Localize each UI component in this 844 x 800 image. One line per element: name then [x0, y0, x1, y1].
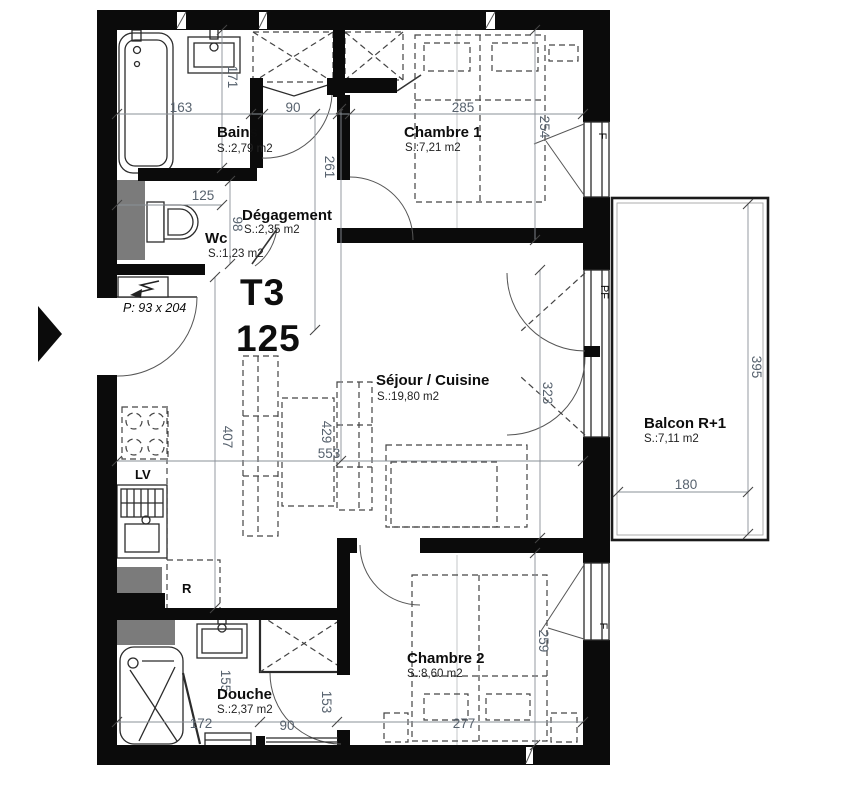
shaft-kitchen-wall: [117, 593, 165, 609]
area-douche: S.:2,37 m2: [217, 704, 273, 716]
floorplan-svg: 163 90 285 171 261 254 125 98 407 429 55…: [0, 0, 844, 800]
wall-douche-chambre2: [337, 538, 350, 675]
dim-chambre1-depth: 254: [537, 116, 552, 139]
sofa: [243, 356, 278, 536]
dim-kitchen-run: 407: [220, 426, 235, 449]
shower-screen: [183, 673, 200, 744]
dim-balcon-width: 180: [675, 477, 698, 492]
dim-french-window-span: 323: [540, 382, 555, 405]
shaft-kitchen-2: [117, 620, 175, 645]
label-sejour: Séjour / Cuisine: [376, 372, 489, 389]
floorplan-canvas: 163 90 285 171 261 254 125 98 407 429 55…: [0, 0, 844, 800]
closet-bifold-door: [255, 84, 331, 96]
window-label-chambre2: F: [597, 623, 609, 630]
nightstand: [549, 45, 578, 61]
label-balcon: Balcon R+1: [644, 415, 726, 432]
entry-door-label: P: 93 x 204: [123, 301, 186, 315]
label-douche: Douche: [217, 686, 272, 703]
chairs: [337, 382, 372, 510]
pillow: [486, 694, 530, 720]
area-bains: S.:2,79 m2: [217, 143, 273, 155]
wall-degagement-chambre1: [337, 95, 350, 180]
wall-wc-entry: [97, 264, 205, 275]
unit-number: 125: [236, 318, 301, 359]
dim-wc-width: 125: [192, 188, 215, 203]
wall-bains-wc: [138, 168, 257, 181]
dishwasher-label: LV: [135, 467, 151, 482]
dim-sejour-width: 553: [318, 446, 341, 461]
dim-sejour-depth: 429: [319, 421, 334, 444]
area-wc: S.:1,23 m2: [208, 248, 264, 260]
label-wc: Wc: [205, 230, 228, 247]
label-degagement: Dégagement: [242, 207, 332, 224]
wall-douche-top: [117, 608, 350, 620]
pillow: [492, 43, 538, 71]
chambre1-furniture: [415, 35, 578, 202]
dim-bains-width: 163: [170, 100, 193, 115]
toilet-tank: [147, 202, 164, 242]
dim-chambre2-width: 277: [453, 716, 476, 731]
dim-degagement-depth: 261: [322, 156, 337, 179]
wall-closet-chambre1: [345, 78, 397, 93]
window-label-chambre1: F: [596, 133, 608, 140]
area-chambre2: S.:8,60 m2: [407, 668, 463, 680]
entrance-arrow-icon: [38, 306, 62, 362]
dim-douche-partition: 153: [319, 691, 334, 714]
area-balcon: S.:7,11 m2: [644, 433, 699, 445]
pillow: [424, 43, 470, 71]
area-sejour: S.:19,80 m2: [377, 391, 439, 403]
fridge-slot: [167, 560, 220, 612]
nightstand: [384, 713, 408, 742]
nightstand: [551, 713, 577, 742]
room-labels: Bains S.:2,79 m2 Dégagement S.:2,35 m2 W…: [205, 124, 726, 716]
technical-shafts: [117, 180, 175, 645]
fridge-label: R: [182, 581, 192, 596]
dim-douche-width: 172: [190, 716, 213, 731]
dim-closet-width: 90: [285, 100, 300, 115]
wall-sejour-chambre2: [420, 538, 583, 553]
dim-balcon-depth: 395: [749, 356, 764, 379]
area-chambre1: S.:7,21 m2: [405, 142, 461, 154]
french-window-label: PF: [598, 285, 610, 299]
dim-chambre1-width: 285: [452, 100, 475, 115]
dim-chambre2-depth: 259: [536, 630, 551, 653]
low-table: [391, 462, 497, 527]
rug: [386, 445, 527, 527]
entry-panel: [118, 277, 168, 297]
label-chambre1: Chambre 1: [404, 124, 482, 141]
label-bains: Bains: [217, 124, 258, 141]
unit-type: T3: [240, 272, 285, 313]
area-degagement: S.:2,35 m2: [244, 224, 300, 236]
label-chambre2: Chambre 2: [407, 650, 485, 667]
shaft-wc: [117, 180, 145, 260]
dim-bains-depth: 171: [225, 66, 240, 89]
misc-labels: T3 125 P: 93 x 204 LV R F F PF: [123, 133, 610, 630]
shaft-kitchen-1: [117, 567, 162, 596]
chambre2-door-swing: [360, 545, 420, 605]
bathtub: [119, 33, 173, 173]
dim-douche-door: 90: [279, 718, 294, 733]
wall-chambre1-sejour: [337, 228, 583, 243]
wc-fixtures: [147, 202, 198, 242]
wall-closet-divider: [333, 30, 345, 97]
